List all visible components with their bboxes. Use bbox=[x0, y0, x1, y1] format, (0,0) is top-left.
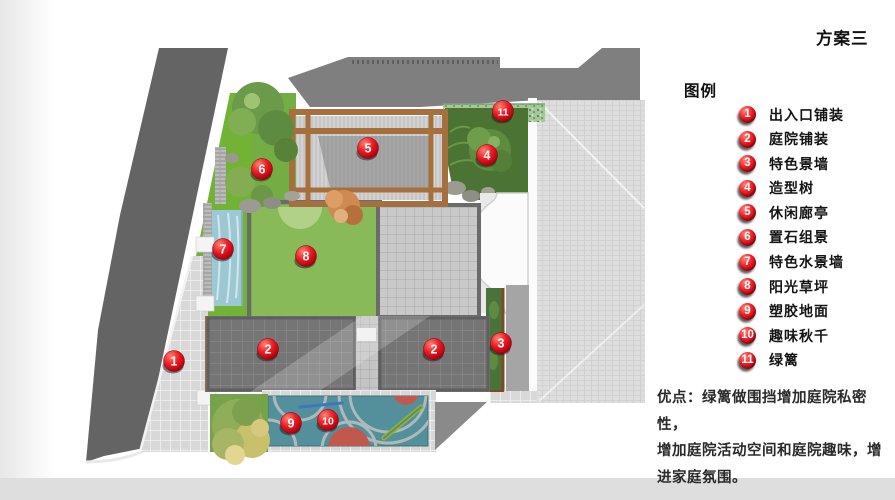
step-block bbox=[196, 237, 214, 252]
ramp-triangle bbox=[435, 402, 487, 450]
building-top bbox=[288, 48, 640, 107]
legend-label: 出入口铺装 bbox=[769, 105, 844, 125]
legend-badge: 6 bbox=[739, 229, 756, 246]
legend-item: 5休闲廊亭 bbox=[739, 204, 844, 221]
plan-marker-number: 9 bbox=[288, 416, 295, 430]
legend-item: 9塑胶地面 bbox=[739, 303, 844, 320]
plan-marker-number: 2 bbox=[265, 342, 272, 356]
legend-label: 置石组景 bbox=[769, 227, 829, 247]
legend: 1出入口铺装 2庭院铺装 3特色景墙 4造型树 5休闲廊亭 6置石组景 7特色水… bbox=[739, 106, 844, 377]
legend-item: 4造型树 bbox=[739, 180, 844, 197]
legend-item: 7特色水景墙 bbox=[739, 254, 844, 271]
legend-badge: 2 bbox=[739, 131, 756, 148]
plan-marker-number: 10 bbox=[322, 415, 334, 427]
legend-label: 特色水景墙 bbox=[769, 252, 844, 272]
advantages-line: 优点：绿篱做围挡增加庭院私密性， bbox=[657, 385, 893, 438]
plan-marker-number: 6 bbox=[259, 162, 266, 176]
legend-badge: 4 bbox=[739, 180, 756, 197]
plan-marker-number: 1 bbox=[171, 354, 178, 368]
legend-badge: 8 bbox=[739, 278, 756, 295]
plan-marker-number: 2 bbox=[431, 342, 438, 356]
legend-label: 庭院铺装 bbox=[769, 129, 829, 149]
plan-marker-number: 11 bbox=[497, 106, 508, 118]
central-paving bbox=[378, 205, 479, 317]
legend-badge: 11 bbox=[739, 352, 756, 369]
rock bbox=[462, 190, 480, 202]
plan-marker-number: 5 bbox=[365, 141, 372, 155]
legend-item: 6置石组景 bbox=[739, 229, 844, 246]
advantages-note: 优点：绿篱做围挡增加庭院私密性， 增加庭院活动空间和庭院趣味，增 进家庭氛围。 bbox=[657, 385, 893, 491]
advantages-line: 进家庭氛围。 bbox=[657, 465, 893, 492]
legend-badge: 1 bbox=[739, 106, 756, 123]
legend-label: 塑胶地面 bbox=[769, 301, 829, 321]
legend-item: 3特色景墙 bbox=[739, 155, 844, 172]
neighbor-roof bbox=[528, 98, 645, 403]
legend-item: 10趣味秋千 bbox=[739, 327, 844, 344]
legend-item: 8阳光草坪 bbox=[739, 278, 844, 295]
legend-badge: 7 bbox=[739, 254, 756, 271]
legend-label: 造型树 bbox=[769, 178, 814, 198]
step-block bbox=[196, 296, 214, 311]
plan-marker-number: 8 bbox=[303, 249, 310, 263]
legend-badge: 9 bbox=[739, 303, 756, 320]
plan-marker-number: 3 bbox=[498, 336, 505, 350]
autumn-tree bbox=[210, 394, 270, 465]
legend-heading: 图例 bbox=[684, 79, 717, 101]
legend-label: 特色景墙 bbox=[769, 154, 829, 174]
plan-marker-number: 7 bbox=[220, 242, 227, 256]
page-title: 方案三 bbox=[816, 25, 869, 49]
step-strip-grid bbox=[490, 391, 537, 403]
advantages-line: 增加庭院活动空间和庭院趣味，增 bbox=[657, 438, 893, 465]
plan-marker-number: 4 bbox=[484, 148, 491, 162]
legend-label: 阳光草坪 bbox=[769, 277, 829, 297]
legend-badge: 10 bbox=[739, 327, 756, 344]
legend-label: 趣味秋千 bbox=[769, 326, 829, 346]
legend-label: 休闲廊亭 bbox=[769, 203, 829, 223]
legend-item: 11绿篱 bbox=[739, 352, 844, 369]
legend-item: 1出入口铺装 bbox=[739, 106, 844, 123]
legend-badge: 3 bbox=[739, 155, 756, 172]
legend-label: 绿篱 bbox=[769, 350, 799, 370]
legend-badge: 5 bbox=[739, 204, 756, 221]
legend-item: 2庭院铺装 bbox=[739, 131, 844, 148]
